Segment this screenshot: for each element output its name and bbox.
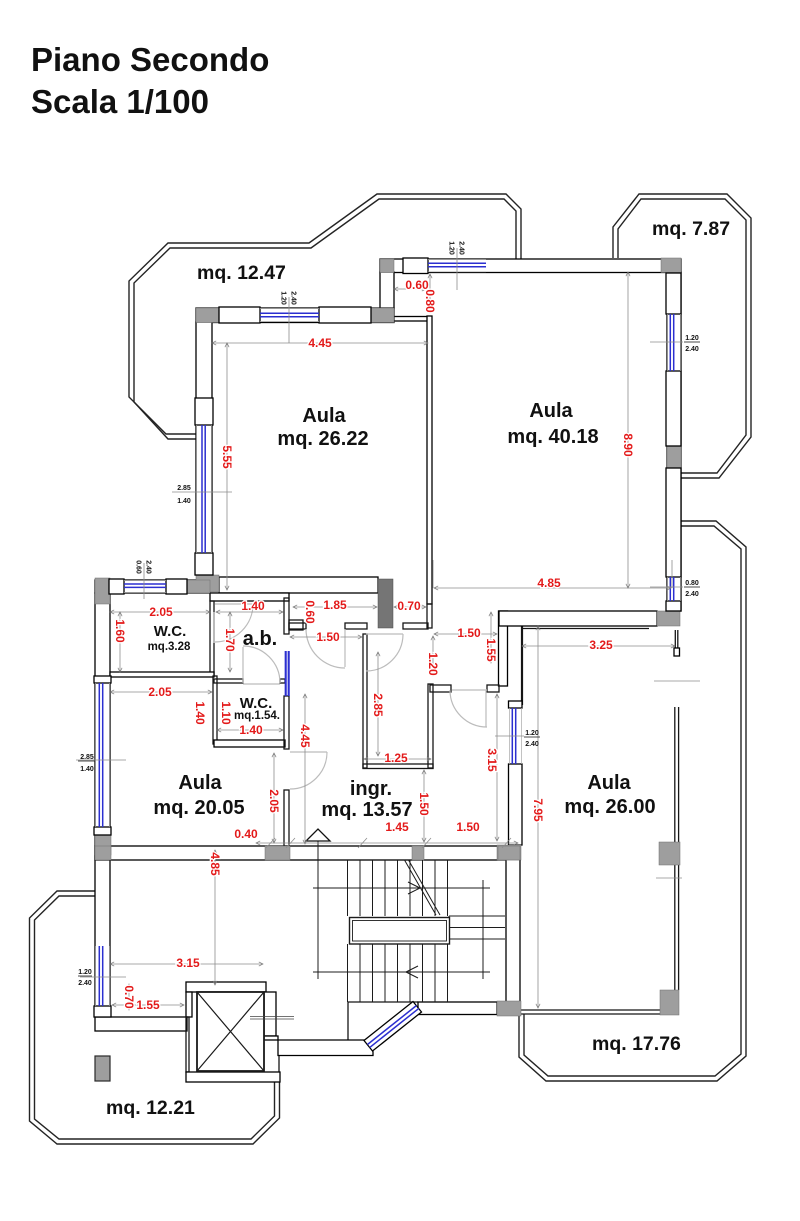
svg-text:4.45: 4.45 — [298, 724, 312, 748]
svg-text:2.85: 2.85 — [80, 754, 94, 761]
svg-text:0.70: 0.70 — [122, 985, 136, 1009]
svg-text:Scala 1/100: Scala 1/100 — [31, 83, 209, 120]
svg-text:1.20: 1.20 — [78, 969, 92, 976]
svg-text:Aula: Aula — [178, 772, 222, 794]
svg-text:mq. 20.05: mq. 20.05 — [153, 797, 244, 819]
svg-text:2.40: 2.40 — [525, 741, 539, 748]
svg-text:4.85: 4.85 — [208, 852, 222, 876]
svg-text:0.60: 0.60 — [135, 560, 142, 574]
svg-text:1.40: 1.40 — [80, 766, 94, 773]
svg-text:2.40: 2.40 — [290, 291, 297, 305]
svg-text:1.20: 1.20 — [448, 241, 455, 255]
svg-text:1.40: 1.40 — [239, 723, 263, 737]
svg-text:2.40: 2.40 — [685, 346, 699, 353]
svg-text:4.45: 4.45 — [308, 336, 332, 350]
svg-text:2.05: 2.05 — [148, 685, 172, 699]
svg-text:Aula: Aula — [587, 772, 631, 794]
svg-text:1.60: 1.60 — [113, 619, 127, 643]
svg-text:mq. 40.18: mq. 40.18 — [507, 426, 598, 448]
svg-text:1.10: 1.10 — [219, 701, 233, 725]
svg-text:7.95: 7.95 — [531, 798, 545, 822]
svg-text:a.b.: a.b. — [243, 628, 277, 650]
svg-text:1.20: 1.20 — [685, 335, 699, 342]
svg-text:1.45: 1.45 — [385, 820, 409, 834]
svg-text:2.40: 2.40 — [145, 560, 152, 574]
svg-text:mq. 12.47: mq. 12.47 — [197, 262, 286, 284]
svg-text:mq.3.28: mq.3.28 — [148, 641, 191, 653]
svg-text:5.55: 5.55 — [220, 445, 234, 469]
svg-text:2.40: 2.40 — [458, 241, 465, 255]
svg-text:mq. 12.21: mq. 12.21 — [106, 1097, 195, 1119]
svg-text:8.90: 8.90 — [621, 433, 635, 457]
svg-text:Aula: Aula — [302, 405, 346, 427]
svg-text:0.60: 0.60 — [303, 600, 317, 624]
svg-text:1.55: 1.55 — [136, 998, 160, 1012]
svg-text:Piano Secondo: Piano Secondo — [31, 41, 269, 78]
svg-text:1.40: 1.40 — [241, 599, 265, 613]
svg-text:3.15: 3.15 — [485, 748, 499, 772]
svg-text:2.40: 2.40 — [685, 591, 699, 598]
svg-text:1.20: 1.20 — [525, 730, 539, 737]
svg-text:1.40: 1.40 — [177, 498, 191, 505]
svg-text:1.20: 1.20 — [426, 652, 440, 676]
svg-text:1.50: 1.50 — [316, 630, 340, 644]
svg-text:1.55: 1.55 — [484, 638, 498, 662]
svg-text:1.50: 1.50 — [457, 626, 481, 640]
svg-text:3.15: 3.15 — [176, 956, 200, 970]
svg-text:4.85: 4.85 — [537, 576, 561, 590]
svg-text:mq.1.54.: mq.1.54. — [234, 710, 280, 722]
svg-text:W.C.: W.C. — [154, 623, 187, 640]
svg-text:3.25: 3.25 — [589, 638, 613, 652]
svg-text:1.50: 1.50 — [456, 820, 480, 834]
svg-text:ingr.: ingr. — [350, 778, 392, 800]
svg-text:mq. 17.76: mq. 17.76 — [592, 1033, 681, 1055]
svg-text:2.40: 2.40 — [78, 980, 92, 987]
svg-text:1.20: 1.20 — [280, 291, 287, 305]
svg-text:2.85: 2.85 — [177, 485, 191, 492]
svg-text:2.05: 2.05 — [267, 789, 281, 813]
svg-text:0.70: 0.70 — [397, 599, 421, 613]
svg-text:2.05: 2.05 — [149, 605, 173, 619]
svg-text:0.80: 0.80 — [685, 580, 699, 587]
svg-text:0.80: 0.80 — [423, 289, 437, 313]
svg-text:2.85: 2.85 — [371, 693, 385, 717]
svg-text:1.85: 1.85 — [323, 598, 347, 612]
svg-text:mq. 26.22: mq. 26.22 — [277, 428, 368, 450]
svg-text:1.70: 1.70 — [223, 628, 237, 652]
svg-text:mq. 26.00: mq. 26.00 — [564, 796, 655, 818]
svg-text:1.50: 1.50 — [417, 792, 431, 816]
svg-text:1.25: 1.25 — [384, 751, 408, 765]
svg-text:0.40: 0.40 — [234, 827, 258, 841]
svg-text:mq. 7.87: mq. 7.87 — [652, 218, 730, 240]
svg-text:Aula: Aula — [529, 400, 573, 422]
svg-text:mq. 13.57: mq. 13.57 — [321, 799, 412, 821]
svg-text:1.40: 1.40 — [193, 701, 207, 725]
